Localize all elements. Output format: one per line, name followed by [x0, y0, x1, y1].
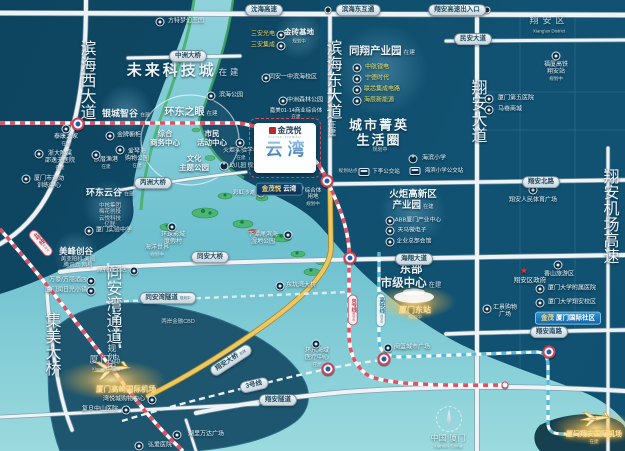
- compass-label-cn: 中国·厦门: [431, 433, 466, 442]
- poi-xiatanwei-wetland-park: 下潭尾滨海湿地公园: [248, 232, 278, 246]
- road-xiangan-airport-expressway: 翔安机场高速: [598, 164, 619, 268]
- poi-lianxin-ic: 联芯集成电路: [364, 86, 400, 93]
- metro-interchange-icon-1: [72, 118, 85, 131]
- poi-xmu-affiliated-hospital: 厦门大学附属医院: [548, 285, 596, 292]
- road-binhaidong-interchange: 滨海东互通: [336, 4, 381, 16]
- badge-jinmao-intl-community: 金茂厦门国际社区: [535, 312, 601, 325]
- haichen-icon: [353, 97, 362, 106]
- poi-marriott-hotel: 万豪/万丽酒店: [49, 277, 87, 284]
- site-badge: 金茂悦云湾: [256, 183, 303, 196]
- no5-hospital-icon: [485, 95, 494, 104]
- jinzhuan-base-tag: 规划中: [292, 38, 306, 43]
- poi-enterprise-hq-hall: 企业总部会馆: [397, 239, 432, 246]
- maxiang-icon: [485, 106, 494, 115]
- dongkengwan-icon: [276, 282, 285, 291]
- poi-xiangan-district-government: 翔安区政府: [514, 277, 547, 285]
- sports-training-icon: [22, 175, 31, 184]
- poi-xiamen-sports-training-center: 厦门市运动训练中心: [34, 176, 64, 190]
- road-xiangan-north-road: 翔安北路: [522, 176, 560, 188]
- road-bingzhou-bridge: 丙洲大桥: [134, 177, 172, 189]
- metro-interchange-icon-6: [543, 346, 556, 359]
- poi-planned-station-note: 规划站点: [338, 169, 357, 175]
- road-zhongzhou-bridge: 中洲大桥: [169, 50, 207, 62]
- title-eastern-city-center: 东部市级中心在建: [381, 263, 442, 290]
- road-binhaixi-avenue: 滨海西大道: [75, 36, 96, 124]
- poi-fudan-zhongshan-hospital: 复旦中山医院: [82, 406, 118, 413]
- xiangshan-icon: [554, 261, 563, 270]
- experimental-school-icon: [85, 227, 94, 236]
- title-xiangan-district: 翔安区: [529, 16, 568, 27]
- xiali-bus-icon: [359, 168, 370, 176]
- compass-label-en: Xiamen·China: [434, 443, 463, 448]
- aegean-icon: [116, 146, 125, 155]
- title-meifeng-valley: 美峰创谷: [59, 246, 93, 256]
- wanyuecheng-icon: [148, 396, 157, 405]
- poi-cross-strait-finance-cbd: 两岸金融CBD: [161, 319, 195, 325]
- kindergarten-icon: [220, 162, 229, 171]
- metro-interchange-icon-2: [321, 175, 334, 188]
- abb-icon: [386, 217, 395, 226]
- title-city-elite-living-circle: 城市菁英生活圈: [349, 118, 409, 149]
- sunshine-town-icon: [87, 287, 96, 296]
- line-hsr-pill: 高铁线规划中: [376, 293, 386, 327]
- xiamen-location-map: 金茂悦 CHINA JINMAO 云湾 沈海高速滨海东互通翔安高速出入口中洲大桥…: [0, 0, 625, 451]
- huandong-cloud-valley-tenants: 中核集团梅花创投云悦科技亿联: [99, 203, 121, 229]
- poi-sanan-ic: 三安集成: [251, 42, 275, 49]
- poi-tianma-microelectronics: 天马微电子: [398, 228, 427, 235]
- tongan-no1-school-icon: [262, 74, 271, 83]
- poi-goldmedal-cabinet: 金牌橱柜: [117, 132, 141, 139]
- xmu-hospital-icon: [536, 285, 545, 294]
- haibin-bus-icon: [410, 167, 421, 175]
- project-brand: 金茂悦: [254, 127, 316, 135]
- line-8-pill: 8号线规划中: [348, 294, 358, 325]
- fudan-icon: [122, 406, 131, 415]
- poi-catl: 宁德时代: [365, 75, 389, 82]
- sanan-ic-icon: [277, 42, 286, 51]
- government-star-icon: ★: [520, 267, 528, 276]
- title-yincheng-smart-valley: 银城智谷在建: [102, 109, 150, 120]
- torch-school-icon: [236, 139, 245, 148]
- xiamen-island-en: Xiamen Island: [92, 366, 121, 371]
- poi-huli-wanda-plaza: 湖里万达广场: [188, 431, 224, 438]
- poi-dongkengwan-bridge: 东坑湾大桥: [286, 282, 316, 289]
- title-jinzhuan-base: 金砖基地: [284, 29, 314, 38]
- poi-zhongzhou-forest-park: 中洲森林公园: [287, 97, 323, 104]
- catl-icon: [353, 75, 362, 84]
- poi-patson-hotel: 派特森酒店: [97, 267, 127, 274]
- poi-ocean-world: 海洋世界规划中: [145, 245, 169, 257]
- title-future-science-city: 未来科技城在建: [127, 62, 242, 80]
- poi-culture-theme-park: 文化主题公园: [179, 155, 209, 173]
- poi-sunshine-town: 厦门润日光小镇: [45, 287, 87, 294]
- poi-xmu-xiangan-campus: 厦门大学翔安校区: [548, 299, 596, 306]
- haibin-school-icon: [409, 155, 418, 164]
- road-minan-avenue: 民安大道: [454, 33, 492, 45]
- poi-wanyuecheng-mall: 湾悦城购物中心: [103, 396, 145, 403]
- title-xiamen-island: 厦门岛: [89, 355, 122, 366]
- huandong-medical-icon: [312, 340, 321, 349]
- poi-taikang-home: 泰康之家在建: [54, 134, 78, 146]
- poi-xiangshan-tourist-area: 香山旅游区: [544, 271, 574, 278]
- poi-xiamen-no5-hospital: 厦门第五医院: [498, 95, 534, 102]
- hsr-station-icon: [552, 52, 561, 61]
- poi-fantawild-dream-kingdom: 方特梦幻王国: [168, 18, 204, 25]
- project-name: 云湾: [254, 139, 316, 160]
- huijing-icon: [483, 305, 492, 314]
- poi-fuxia-hsr-xiangan-station: 福厦高铁翔安站规划中: [544, 62, 568, 82]
- meifeng-valley-tenants: 美亚柏科 美图腾讯云 网易: [61, 257, 96, 270]
- marriott-icon: [87, 277, 96, 286]
- poi-sanan-optoelectronics: 三安光电: [251, 31, 275, 38]
- jinmao-seal-icon: [269, 127, 276, 134]
- metro-interchange-icon-5: [378, 353, 391, 366]
- compass: [436, 406, 462, 432]
- metro-interchange-icon-3: [344, 252, 357, 265]
- calb-icon: [353, 64, 362, 73]
- project-logo-card: 金茂悦 CHINA JINMAO 云湾: [254, 123, 316, 173]
- poi-maxiang-mall: 马巷商城: [498, 106, 522, 113]
- poi-minlan-city-plaza: 闽篮城市广场: [394, 344, 430, 351]
- poi-tongan-no1-binhai-campus: 同安一中滨海校区: [269, 74, 317, 81]
- road-binhaidong-avenue: 滨海东大道在建: [321, 35, 342, 141]
- tianma-icon: [386, 227, 395, 236]
- binhai-park-icon: [207, 92, 216, 101]
- title-tongxiang-industrial-park: 同翔产业园在建: [349, 45, 415, 57]
- road-xiangan-south-road: 翔安南路: [530, 326, 568, 338]
- road-xiangan-expressway-exit: 翔安高速出入口: [428, 4, 486, 16]
- metro-terminus-icon: [502, 382, 509, 389]
- lianxin-icon: [353, 86, 362, 95]
- poi-binhai-park: 滨海公园: [219, 92, 243, 99]
- road-haixiang-avenue: 海翔大道: [395, 253, 433, 265]
- metro-interchange-icon-4: [322, 363, 335, 376]
- xiangan-district-en: Xiang'an District: [533, 28, 565, 33]
- hq-hall-icon: [386, 238, 395, 247]
- sanan-opto-icon: [277, 31, 286, 40]
- xmu-campus-icon: [536, 299, 545, 308]
- poi-site-complex-land: 综合体用地规划中: [305, 188, 322, 206]
- road-tonganwan-tunnel: 同安湾隧道规划中: [139, 292, 196, 304]
- poi-xiangan-peoples-sports-plaza: 翔安人民体育广场: [509, 197, 557, 204]
- city-elite-planning-tag: 规划中: [372, 148, 387, 154]
- poi-xiali-bus-stop: 下李公交站: [372, 169, 400, 175]
- zheda-hospital-icon: [35, 150, 44, 159]
- minlan-icon: [384, 344, 393, 353]
- road-shenhai-expressway: 沈海高速: [245, 4, 283, 16]
- poi-hongai-hospital: 弘爱医院: [148, 442, 172, 449]
- poi-aegean-shopping-park: 爱琴海购物公园在建: [125, 149, 149, 169]
- road-tongan-bridge: 同安大桥: [191, 251, 229, 263]
- fantawild-icon: [156, 18, 165, 27]
- road-jimei-bridge: 集美大桥: [40, 308, 61, 380]
- wanda-icon: [173, 431, 182, 440]
- poi-xiamen-east-station: 厦门东站规划中: [399, 306, 431, 321]
- poi-citizen-activity-center: 市民活动中心: [197, 130, 227, 148]
- road-xiangan-avenue: 翔安大道: [466, 75, 487, 147]
- poi-abb-xiamen-center: ABB厦门产业中心: [395, 218, 441, 225]
- title-torch-hitech-park: 火炬高新区产业园在建: [389, 189, 437, 211]
- road-xiangan-tunnel: 翔安隧道: [259, 394, 297, 406]
- poi-calb-battery: 中航锂电: [365, 64, 389, 71]
- xiatanwei-icon: [284, 231, 293, 240]
- poi-haibin-school-bus-stop: 海滨小学公交站: [425, 168, 464, 174]
- binhaidong-interchange-dot-icon: [325, 7, 332, 14]
- poi-comprehensive-business-center: 综合商务中心: [150, 130, 180, 148]
- poi-haichen-new-energy: 海辰新能源: [364, 97, 394, 104]
- poi-zheda-shaoyifu-hospital: 浙大附属邵逸夫医院在建: [45, 151, 75, 171]
- patson-icon: [130, 267, 139, 276]
- oucuo-icon: [92, 151, 101, 160]
- title-huandong-cloud-valley: 环东云谷在建: [86, 188, 134, 199]
- poi-xiangan-airport: 厦门翔安国际机场在建: [566, 431, 622, 445]
- goldmedal-icon: [106, 132, 115, 141]
- poi-gaoqi-airport: 厦门高崎国际机场: [96, 386, 156, 395]
- title-huandong-eye: 环东之眼在建: [164, 107, 217, 119]
- zhongzhou-forest-icon: [279, 97, 288, 106]
- poi-xiamen-experimental-middle-school: 厦门实验中学: [96, 227, 132, 234]
- hongai-icon: [135, 442, 144, 451]
- taikang-icon: [62, 125, 71, 134]
- poi-rainbow-beach: 彩虹沙滩: [233, 190, 255, 196]
- poi-huijing-shopping-plaza: 汇景购物广场: [493, 305, 517, 319]
- poi-haibin-primary-school: 海滨小学: [422, 155, 446, 162]
- resort-icon: [168, 223, 177, 232]
- project-site-outline: 金茂悦 CHINA JINMAO 云湾: [249, 118, 321, 178]
